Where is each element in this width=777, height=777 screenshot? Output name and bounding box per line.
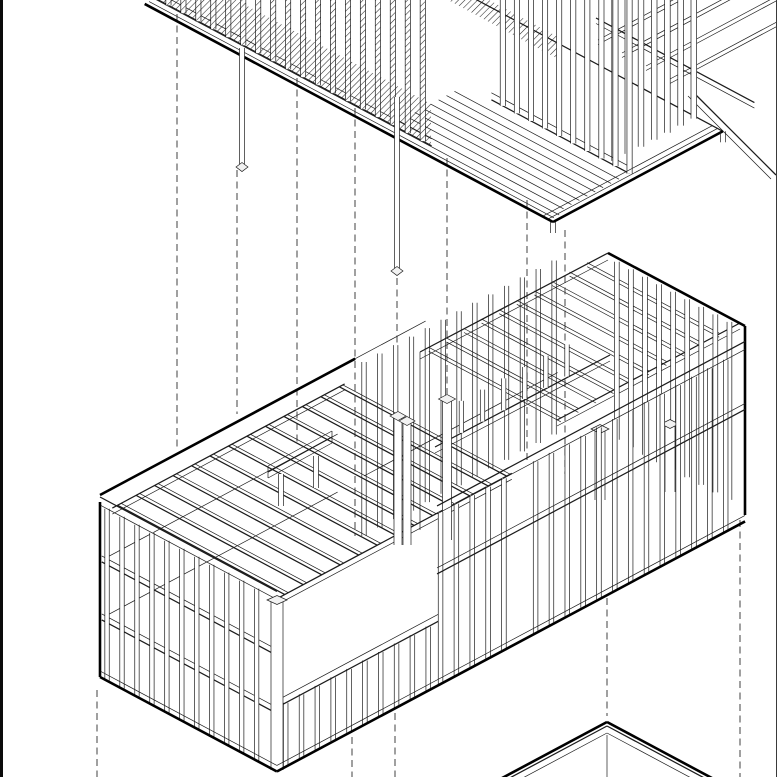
middle-framing-module xyxy=(100,253,745,771)
drawing-page xyxy=(0,0,777,777)
lower-platform-corner xyxy=(484,722,730,777)
framing-drawing-svg xyxy=(0,0,777,777)
page-left-border xyxy=(0,0,3,777)
